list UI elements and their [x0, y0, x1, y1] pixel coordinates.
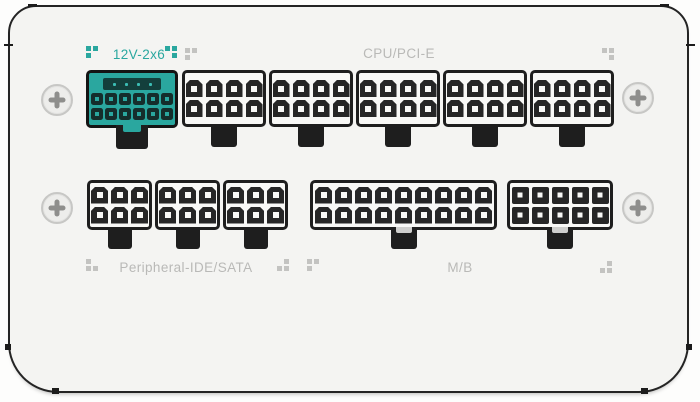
deco-dots-icon — [86, 259, 98, 271]
sense-pin — [125, 83, 128, 86]
pin-socket — [315, 207, 332, 224]
pin-socket — [91, 207, 108, 224]
pin-socket — [447, 80, 464, 97]
pin-socket — [246, 80, 263, 97]
latch-slot — [244, 227, 268, 249]
pin-socket — [159, 187, 176, 204]
connector-mb-10pin — [507, 180, 613, 230]
pin-socket — [592, 207, 609, 224]
latch-slot — [472, 124, 498, 147]
pin-socket — [512, 207, 529, 224]
pin-socket — [161, 93, 173, 105]
pin-socket — [592, 187, 609, 204]
pin-socket — [91, 93, 103, 105]
pin-socket — [293, 100, 310, 117]
label-cpu-pcie: CPU/PCI-E — [363, 46, 435, 61]
pin-socket — [147, 93, 159, 105]
pin-socket — [420, 100, 437, 117]
pin-socket — [179, 187, 196, 204]
sense-pin — [149, 83, 152, 86]
pin-socket — [313, 100, 330, 117]
pin-socket — [435, 187, 452, 204]
pin-socket — [227, 187, 244, 204]
deco-dots-icon — [600, 261, 612, 273]
pin-socket — [512, 187, 529, 204]
pin-socket — [91, 108, 103, 120]
pin-socket — [133, 93, 145, 105]
pin-socket — [247, 207, 264, 224]
pin-socket — [435, 207, 452, 224]
pin-socket — [199, 207, 216, 224]
pin-socket — [534, 80, 551, 97]
pin-socket — [273, 80, 290, 97]
pin-socket — [355, 207, 372, 224]
label-peripheral-ide-sata: Peripheral-IDE/SATA — [119, 260, 252, 275]
pin-socket — [455, 207, 472, 224]
sense-pin-bar — [103, 78, 161, 90]
connector-peripheral-2 — [155, 180, 220, 230]
pin-socket — [475, 187, 492, 204]
pin-socket — [574, 100, 591, 117]
pin-socket — [375, 187, 392, 204]
pin-socket — [335, 207, 352, 224]
connector-cpu-pcie-1 — [182, 70, 266, 127]
deco-dots-icon — [307, 259, 319, 271]
deco-dots-icon — [86, 46, 98, 58]
connector-cpu-pcie-3 — [356, 70, 440, 127]
pin-socket — [333, 80, 350, 97]
deco-dots-icon — [602, 48, 614, 60]
latch-slot — [559, 124, 585, 147]
pin-socket — [179, 207, 196, 224]
pin-socket — [574, 80, 591, 97]
pin-socket — [507, 100, 524, 117]
connector-cpu-pcie-2 — [269, 70, 353, 127]
pin-socket — [487, 100, 504, 117]
pin-socket — [447, 100, 464, 117]
case-notch-top-left — [28, 4, 37, 7]
pin-socket — [467, 100, 484, 117]
pin-socket — [475, 207, 492, 224]
pin-socket — [333, 100, 350, 117]
pin-socket — [206, 80, 223, 97]
pin-socket — [335, 187, 352, 204]
pin-socket — [572, 207, 589, 224]
pin-socket — [111, 207, 128, 224]
case-notch-right-edge — [686, 344, 692, 350]
latch-slot — [385, 124, 411, 147]
pin-socket — [534, 100, 551, 117]
pin-socket — [315, 187, 332, 204]
label-12v-2x6: 12V-2x6 — [113, 47, 165, 62]
pin-socket — [507, 80, 524, 97]
pin-socket — [247, 187, 264, 204]
latch-slot — [211, 124, 237, 147]
deco-dots-icon — [185, 48, 197, 60]
case-notch-bottom-left — [52, 388, 59, 394]
pin-socket — [415, 187, 432, 204]
pin-socket — [400, 100, 417, 117]
pin-socket — [455, 187, 472, 204]
screw-icon — [622, 82, 654, 114]
pin-socket — [273, 100, 290, 117]
pin-socket — [594, 100, 611, 117]
pin-socket — [91, 187, 108, 204]
sense-pin — [113, 83, 116, 86]
case-tick-left — [4, 44, 13, 46]
case-notch-top-right — [660, 4, 669, 7]
pin-socket — [131, 187, 148, 204]
pin-socket — [552, 207, 569, 224]
pin-socket — [313, 80, 330, 97]
pin-socket — [119, 108, 131, 120]
pin-socket — [186, 80, 203, 97]
pin-socket — [226, 100, 243, 117]
pin-socket — [554, 80, 571, 97]
pin-socket — [131, 207, 148, 224]
pin-socket — [420, 80, 437, 97]
pin-socket — [186, 100, 203, 117]
pin-socket — [226, 80, 243, 97]
latch-slot — [176, 227, 200, 249]
pin-socket — [293, 80, 310, 97]
pin-socket — [375, 207, 392, 224]
pin-socket — [467, 80, 484, 97]
connector-peripheral-1 — [87, 180, 152, 230]
pin-socket — [206, 100, 223, 117]
pin-socket — [246, 100, 263, 117]
pin-socket — [360, 100, 377, 117]
pin-socket — [227, 207, 244, 224]
pin-socket — [395, 187, 412, 204]
pin-socket — [380, 100, 397, 117]
pin-socket — [161, 108, 173, 120]
pin-socket — [199, 187, 216, 204]
pin-socket — [554, 100, 571, 117]
deco-dots-icon — [277, 259, 289, 271]
screw-icon — [41, 84, 73, 116]
pin-socket — [594, 80, 611, 97]
deco-dots-icon — [165, 46, 177, 58]
pin-socket — [400, 80, 417, 97]
pin-socket — [415, 207, 432, 224]
connector-mb-18pin — [310, 180, 497, 230]
pin-socket — [532, 187, 549, 204]
label-mb: M/B — [447, 260, 472, 275]
latch-slot — [108, 227, 132, 249]
pin-socket — [147, 108, 159, 120]
pin-socket — [380, 80, 397, 97]
latch-slot — [391, 227, 417, 249]
screw-icon — [41, 192, 73, 224]
pin-socket — [267, 187, 284, 204]
sense-pin — [137, 83, 140, 86]
pin-socket — [360, 80, 377, 97]
pin-socket — [105, 93, 117, 105]
pin-socket — [267, 207, 284, 224]
pin-socket — [355, 187, 372, 204]
pin-socket — [159, 207, 176, 224]
pin-socket — [487, 80, 504, 97]
pin-socket — [395, 207, 412, 224]
pin-socket — [111, 187, 128, 204]
connector-12v-2x6 — [86, 70, 178, 128]
pin-socket — [552, 187, 569, 204]
pin-socket — [133, 108, 145, 120]
pin-socket — [105, 108, 117, 120]
latch-slot — [116, 125, 148, 149]
pin-socket — [572, 187, 589, 204]
case-tick-right — [686, 44, 695, 46]
screw-icon — [622, 192, 654, 224]
latch-slot — [547, 227, 573, 249]
connector-peripheral-3 — [223, 180, 288, 230]
pin-socket — [532, 207, 549, 224]
pin-socket — [119, 93, 131, 105]
connector-cpu-pcie-4 — [443, 70, 527, 127]
case-notch-bottom-right — [641, 388, 648, 394]
case-notch-left-edge — [5, 344, 11, 350]
psu-modular-panel: 12V-2x6 CPU/PCI-E Peripheral-IDE/SATA M/… — [0, 0, 700, 402]
latch-slot — [298, 124, 324, 147]
connector-cpu-pcie-5 — [530, 70, 614, 127]
